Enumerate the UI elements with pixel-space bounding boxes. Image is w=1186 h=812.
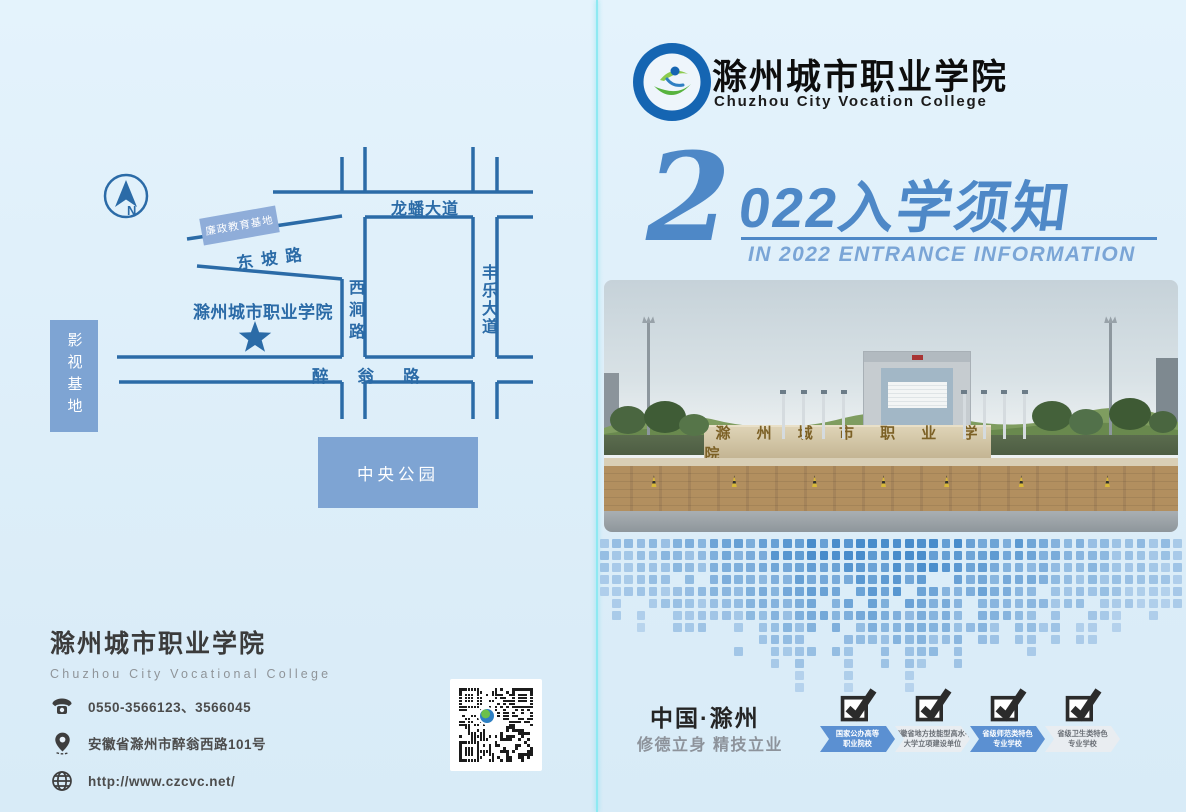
college-name-cn: 滁州城市职业学院: [50, 624, 430, 660]
mosaic-square: [905, 575, 914, 584]
mosaic-square: [661, 587, 670, 596]
badge-ribbon: 国家公办高等 职业院校: [820, 726, 895, 752]
mosaic-square: [771, 611, 780, 620]
mosaic-square: [1125, 539, 1134, 548]
website-row: http://www.czcvc.net/: [50, 770, 430, 792]
mosaic-square: [1173, 587, 1182, 596]
mosaic-square: [881, 539, 890, 548]
mosaic-square: [1125, 575, 1134, 584]
badge-text-line1: 安徽省地方技能型高水平: [893, 729, 972, 739]
mosaic-square: [1100, 587, 1109, 596]
badge-text-line2: 职业院校: [843, 739, 872, 749]
mosaic-square: [881, 575, 890, 584]
mosaic-square: [649, 551, 658, 560]
mosaic-square: [1137, 587, 1146, 596]
mosaic-square: [1112, 587, 1121, 596]
campus-gate-photo: 滁 州 城 市 职 业 学 院: [604, 280, 1178, 532]
mosaic-square: [929, 539, 938, 548]
mosaic-square: [881, 635, 890, 644]
mosaic-square: [1112, 575, 1121, 584]
college-logo-emblem: [631, 41, 713, 123]
mosaic-square: [1015, 539, 1024, 548]
mosaic-square: [856, 551, 865, 560]
photo-tree: [679, 414, 709, 436]
mosaic-square: [710, 587, 719, 596]
mosaic-square: [868, 539, 877, 548]
mosaic-square: [917, 599, 926, 608]
mosaic-square: [954, 551, 963, 560]
mosaic-square: [698, 551, 707, 560]
mosaic-square: [1137, 539, 1146, 548]
mosaic-square: [893, 551, 902, 560]
mosaic-square: [942, 551, 951, 560]
mosaic-square: [783, 551, 792, 560]
title-underline: [741, 237, 1157, 240]
globe-icon: [50, 770, 74, 792]
mosaic-square: [1003, 611, 1012, 620]
badge-text-line2: 专业学校: [1068, 739, 1097, 749]
mosaic-square: [612, 551, 621, 560]
mosaic-square: [698, 539, 707, 548]
road-label-longpan: 龙蟠大道: [387, 195, 463, 219]
mosaic-square: [698, 587, 707, 596]
mosaic-square: [624, 551, 633, 560]
mosaic-square: [820, 611, 829, 620]
mosaic-square: [917, 575, 926, 584]
mosaic-square: [844, 575, 853, 584]
mosaic-square: [844, 635, 853, 644]
mosaic-square: [978, 587, 987, 596]
mosaic-square: [771, 599, 780, 608]
mosaic-square: [600, 575, 609, 584]
mosaic-square: [1088, 551, 1097, 560]
mosaic-square: [942, 611, 951, 620]
mosaic-square: [966, 575, 975, 584]
mosaic-square: [929, 635, 938, 644]
mosaic-square: [929, 599, 938, 608]
mosaic-square: [685, 599, 694, 608]
mosaic-square: [832, 551, 841, 560]
mosaic-square: [637, 587, 646, 596]
mosaic-square: [893, 539, 902, 548]
phone-row: 0550-3566123、3566045: [50, 696, 430, 716]
mosaic-square: [722, 551, 731, 560]
mosaic-square: [1173, 539, 1182, 548]
address-row: 安徽省滁州市醉翁西路101号: [50, 731, 430, 755]
mosaic-square: [1027, 575, 1036, 584]
badge-text-line2: 专业学校: [993, 739, 1022, 749]
footer-location: 中国·滁州: [650, 699, 760, 733]
mosaic-square: [978, 623, 987, 632]
mosaic-square: [1051, 599, 1060, 608]
mosaic-square: [844, 563, 853, 572]
mosaic-square: [966, 623, 975, 632]
mosaic-square: [698, 623, 707, 632]
checkmark-icon: [1063, 686, 1103, 724]
mosaic-square: [673, 611, 682, 620]
compass-icon: N: [105, 175, 147, 218]
mosaic-square: [759, 599, 768, 608]
mosaic-square: [1088, 611, 1097, 620]
photo-pillar: [1023, 393, 1026, 438]
mosaic-square: [759, 563, 768, 572]
mosaic-square: [746, 551, 755, 560]
mosaic-square: [1015, 587, 1024, 596]
mosaic-square: [1112, 623, 1121, 632]
mosaic-square: [1015, 551, 1024, 560]
phone-number: 0550-3566123、3566045: [88, 696, 251, 716]
mosaic-square: [820, 551, 829, 560]
mosaic-square: [795, 635, 804, 644]
mosaic-square: [832, 647, 841, 656]
mosaic-square: [856, 575, 865, 584]
mosaic-square: [1051, 611, 1060, 620]
mosaic-square: [966, 551, 975, 560]
mosaic-square: [1112, 551, 1121, 560]
mosaic-square: [612, 575, 621, 584]
mosaic-square: [1088, 623, 1097, 632]
campus-location-map: N 龙蟠大道 丰乐大道 西涧路 东坡路 醉翁路 滁州城市职业学院 廉政教育基地 …: [35, 135, 545, 530]
mosaic-square: [783, 647, 792, 656]
mosaic-square: [1076, 551, 1085, 560]
mosaic-square: [783, 587, 792, 596]
mosaic-square: [1100, 563, 1109, 572]
mosaic-square: [1003, 575, 1012, 584]
mosaic-square: [978, 575, 987, 584]
mosaic-square: [844, 599, 853, 608]
checkmark-icon: [988, 686, 1028, 724]
mosaic-square: [1027, 551, 1036, 560]
mosaic-square: [990, 599, 999, 608]
mosaic-square: [600, 587, 609, 596]
mosaic-square: [1161, 575, 1170, 584]
mosaic-square: [929, 647, 938, 656]
mosaic-square: [710, 575, 719, 584]
mosaic-square: [722, 599, 731, 608]
mosaic-square: [807, 587, 816, 596]
mosaic-square: [1088, 587, 1097, 596]
mosaic-square: [893, 623, 902, 632]
mosaic-square: [1003, 551, 1012, 560]
logo-subtitle-en: Chuzhou City Vocation College: [714, 93, 988, 110]
mosaic-square: [954, 587, 963, 596]
mosaic-square: [771, 539, 780, 548]
title-year-text: 022入学须知: [734, 163, 1077, 244]
mosaic-square: [893, 635, 902, 644]
mosaic-square: [966, 539, 975, 548]
mosaic-square: [807, 575, 816, 584]
mosaic-square: [942, 539, 951, 548]
mosaic-square: [881, 599, 890, 608]
mosaic-square: [1051, 551, 1060, 560]
photo-road: [604, 511, 1178, 532]
mosaic-square: [990, 539, 999, 548]
mosaic-square: [771, 659, 780, 668]
mosaic-square: [1076, 563, 1085, 572]
mosaic-square: [661, 599, 670, 608]
mosaic-square: [820, 539, 829, 548]
checkmark-icon: [913, 686, 953, 724]
mosaic-square: [1149, 551, 1158, 560]
mosaic-square: [1027, 611, 1036, 620]
page-fold-line: [596, 0, 598, 812]
mosaic-square: [954, 647, 963, 656]
mosaic-square: [1125, 563, 1134, 572]
mosaic-square: [1015, 623, 1024, 632]
mosaic-square: [844, 671, 853, 680]
address-text: 安徽省滁州市醉翁西路101号: [88, 733, 266, 753]
mosaic-square: [783, 563, 792, 572]
mosaic-square: [844, 551, 853, 560]
mosaic-square: [978, 551, 987, 560]
mosaic-square: [881, 647, 890, 656]
mosaic-square: [661, 539, 670, 548]
mosaic-square: [807, 623, 816, 632]
mosaic-square: [881, 611, 890, 620]
mosaic-square: [1088, 539, 1097, 548]
mosaic-square: [929, 587, 938, 596]
mosaic-square: [759, 623, 768, 632]
mosaic-square: [759, 551, 768, 560]
mosaic-square: [1076, 539, 1085, 548]
mosaic-square: [1003, 539, 1012, 548]
mosaic-square: [954, 623, 963, 632]
mosaic-square: [759, 587, 768, 596]
mosaic-square: [1137, 563, 1146, 572]
mosaic-square: [881, 551, 890, 560]
mosaic-square: [978, 599, 987, 608]
map-college-label: 滁州城市职业学院: [193, 298, 333, 323]
mosaic-square: [722, 575, 731, 584]
mosaic-square: [990, 611, 999, 620]
mosaic-square: [1003, 587, 1012, 596]
mosaic-square: [649, 587, 658, 596]
badge-ribbon: 省级卫生类特色 专业学校: [1045, 726, 1120, 752]
contact-block: 滁州城市职业学院 Chuzhou City Vocational College…: [50, 624, 430, 792]
photo-pillar: [1003, 393, 1006, 438]
mosaic-square: [1161, 539, 1170, 548]
mosaic-square: [917, 659, 926, 668]
badge-national-public: 国家公办高等 职业院校: [820, 686, 895, 752]
mosaic-square: [685, 539, 694, 548]
mosaic-square: [1027, 539, 1036, 548]
mosaic-square: [832, 563, 841, 572]
mosaic-square: [1015, 635, 1024, 644]
mosaic-square: [1015, 563, 1024, 572]
mosaic-square: [649, 575, 658, 584]
mosaic-square: [710, 539, 719, 548]
mosaic-square: [1027, 563, 1036, 572]
mosaic-square: [1003, 599, 1012, 608]
mosaic-square: [893, 563, 902, 572]
mosaic-square: [856, 587, 865, 596]
accreditation-badges: 国家公办高等 职业院校 安徽省地方技能型高水平 大学立项建设单位 省级师范类特色…: [820, 686, 1120, 752]
mosaic-square: [771, 635, 780, 644]
mosaic-square: [771, 623, 780, 632]
mosaic-square: [1161, 587, 1170, 596]
mosaic-square: [1064, 563, 1073, 572]
mosaic-square: [929, 611, 938, 620]
mosaic-square: [795, 623, 804, 632]
qr-center-logo: [478, 707, 496, 725]
mosaic-square: [1076, 587, 1085, 596]
mosaic-square: [942, 587, 951, 596]
badge-text-line1: 国家公办高等: [836, 729, 879, 739]
mosaic-square: [746, 575, 755, 584]
mosaic-square: [905, 623, 914, 632]
mosaic-square: [1039, 563, 1048, 572]
mosaic-square: [1076, 623, 1085, 632]
mosaic-square: [722, 539, 731, 548]
mosaic-square: [917, 611, 926, 620]
mosaic-square: [1137, 575, 1146, 584]
mosaic-square: [978, 563, 987, 572]
mosaic-square: [1149, 575, 1158, 584]
mosaic-square: [990, 551, 999, 560]
title-digit-2: 2: [646, 136, 731, 258]
mosaic-square: [917, 563, 926, 572]
mosaic-square: [1149, 611, 1158, 620]
mosaic-square: [649, 563, 658, 572]
photo-plaza-edge: [604, 458, 1178, 467]
mosaic-square: [734, 599, 743, 608]
mosaic-square: [612, 587, 621, 596]
mosaic-square: [710, 611, 719, 620]
mosaic-square: [807, 551, 816, 560]
mosaic-square: [612, 611, 621, 620]
mosaic-square: [734, 623, 743, 632]
mosaic-square: [1112, 539, 1121, 548]
photo-pillar: [983, 393, 986, 438]
mosaic-square: [722, 587, 731, 596]
mosaic-square: [917, 647, 926, 656]
mosaic-square: [942, 623, 951, 632]
qr-code: [450, 679, 542, 771]
mosaic-square: [746, 599, 755, 608]
mosaic-square: [1149, 563, 1158, 572]
brochure-cover: { "brand": { "logo_title": "滁州城市职业学院", "…: [0, 0, 1186, 812]
mosaic-square: [734, 587, 743, 596]
mosaic-square: [795, 575, 804, 584]
title-subtitle-en: IN 2022 ENTRANCE INFORMATION: [748, 243, 1136, 267]
mosaic-square: [1015, 575, 1024, 584]
mosaic-square: [771, 551, 780, 560]
mosaic-square: [929, 551, 938, 560]
mosaic-square: [1027, 635, 1036, 644]
mosaic-square: [905, 611, 914, 620]
mosaic-square: [832, 539, 841, 548]
mosaic-square: [807, 647, 816, 656]
photo-gate-wall: 滁 州 城 市 职 业 学 院: [704, 425, 991, 459]
mosaic-square: [637, 611, 646, 620]
mosaic-square: [722, 563, 731, 572]
mosaic-square: [783, 635, 792, 644]
mosaic-square: [795, 551, 804, 560]
mosaic-square: [1100, 539, 1109, 548]
mosaic-square: [1051, 563, 1060, 572]
pixel-mosaic-decoration: [600, 539, 1186, 697]
college-star-marker: [239, 321, 271, 352]
mosaic-square: [685, 563, 694, 572]
mosaic-square: [1064, 575, 1073, 584]
mosaic-square: [685, 587, 694, 596]
badge-ribbon: 安徽省地方技能型高水平 大学立项建设单位: [895, 726, 970, 752]
mosaic-square: [783, 575, 792, 584]
mosaic-square: [685, 611, 694, 620]
badge-skill-university: 安徽省地方技能型高水平 大学立项建设单位: [895, 686, 970, 752]
mosaic-square: [1173, 599, 1182, 608]
mosaic-square: [966, 587, 975, 596]
photo-pillar: [822, 393, 825, 438]
mosaic-square: [783, 539, 792, 548]
mosaic-square: [1015, 611, 1024, 620]
mosaic-square: [1088, 575, 1097, 584]
mosaic-square: [795, 647, 804, 656]
mosaic-square: [905, 635, 914, 644]
mosaic-square: [868, 635, 877, 644]
mosaic-square: [734, 539, 743, 548]
road-label-xijian: 西涧路: [342, 279, 366, 345]
photo-pillar: [963, 393, 966, 438]
mosaic-square: [673, 539, 682, 548]
mosaic-square: [783, 611, 792, 620]
mosaic-square: [1088, 563, 1097, 572]
mosaic-square: [1173, 551, 1182, 560]
photo-tree: [1032, 401, 1072, 431]
mosaic-square: [795, 539, 804, 548]
mosaic-square: [929, 623, 938, 632]
photo-pillar: [842, 393, 845, 438]
mosaic-square: [673, 599, 682, 608]
mosaic-square: [600, 551, 609, 560]
mosaic-square: [856, 635, 865, 644]
mosaic-square: [881, 587, 890, 596]
mosaic-square: [1051, 587, 1060, 596]
badge-normal-school: 省级师范类特色 专业学校: [970, 686, 1045, 752]
mosaic-square: [649, 599, 658, 608]
road-label-zuiweng: 醉翁路: [312, 363, 449, 387]
checkmark-icon: [838, 686, 878, 724]
mosaic-square: [954, 635, 963, 644]
mosaic-square: [783, 599, 792, 608]
mosaic-square: [917, 551, 926, 560]
mosaic-square: [954, 599, 963, 608]
mosaic-square: [820, 563, 829, 572]
mosaic-square: [917, 635, 926, 644]
mosaic-square: [746, 611, 755, 620]
mosaic-square: [612, 539, 621, 548]
mosaic-square: [1149, 599, 1158, 608]
mosaic-square: [1100, 575, 1109, 584]
mosaic-square: [795, 683, 804, 692]
mosaic-square: [1100, 611, 1109, 620]
mosaic-square: [856, 563, 865, 572]
mosaic-square: [954, 659, 963, 668]
mosaic-square: [710, 563, 719, 572]
mosaic-square: [917, 539, 926, 548]
mosaic-square: [1125, 551, 1134, 560]
mosaic-square: [661, 575, 670, 584]
mosaic-square: [698, 611, 707, 620]
mosaic-square: [771, 647, 780, 656]
mosaic-square: [807, 599, 816, 608]
mosaic-square: [661, 551, 670, 560]
mosaic-square: [1051, 635, 1060, 644]
mosaic-square: [624, 575, 633, 584]
mosaic-square: [673, 551, 682, 560]
mosaic-square: [1161, 599, 1170, 608]
phone-icon: [50, 697, 74, 715]
